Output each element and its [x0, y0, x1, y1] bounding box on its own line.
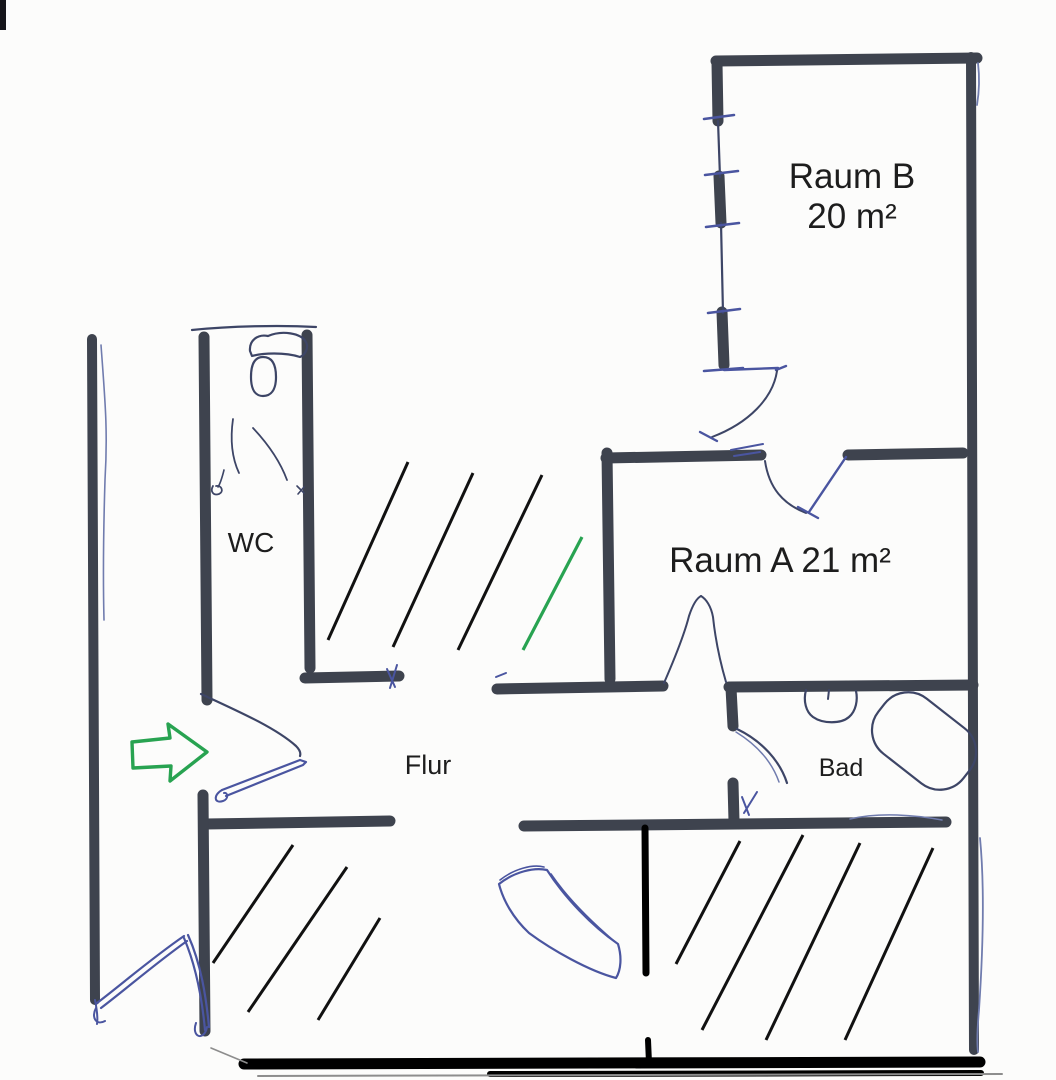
room-area-raum-b: 20 m²	[742, 197, 962, 237]
raum-a-door-swing	[765, 461, 806, 513]
wc-wall-right	[307, 335, 310, 668]
wc-hinge-circle	[212, 486, 222, 495]
hatch-line-bottom-left	[318, 918, 380, 1020]
wc-sketch-curve	[218, 470, 224, 487]
raum-b-wall-left-b	[719, 176, 721, 223]
raum-a-door-tick	[798, 507, 818, 518]
hatch-line-bottom-right	[702, 835, 803, 1030]
scan-edge-mark	[0, 0, 6, 30]
raum-b-wall-left-c	[722, 312, 724, 365]
wc-wall-corner	[305, 676, 399, 678]
wc-sketch-curve	[232, 419, 239, 473]
hatch-line-bottom-left	[213, 845, 293, 963]
entry-door-scribble	[94, 1008, 207, 1036]
flur-door-swing	[701, 596, 726, 682]
wc-wall-left-upper	[204, 337, 207, 700]
green-hatch-line	[523, 537, 582, 650]
wc-door-leaf	[222, 760, 306, 796]
raum-b-wall-top	[716, 58, 977, 61]
raum-b-wall-left-a	[717, 63, 718, 121]
flur-wall-bottom-left	[206, 821, 390, 824]
black-wall-vertical	[645, 828, 646, 973]
flur-wall-tick	[496, 673, 506, 677]
outer-wall-left	[92, 339, 95, 1000]
wc-wall-top-sketch	[192, 326, 316, 330]
hatch-line-middle	[458, 475, 542, 650]
floor-plan: Raum B 20 m² Raum A 21 m² WC Flur Bad	[0, 0, 1056, 1080]
flur-wall-top	[497, 686, 663, 689]
bad-wall-top	[729, 685, 973, 687]
raum-a-wall-left	[607, 453, 610, 679]
room-label-flur: Flur	[398, 750, 458, 781]
room-label-raum-b: Raum B 20 m²	[742, 157, 962, 237]
room-label-raum-a: Raum A 21 m²	[655, 541, 905, 581]
toilet-tank-sketch	[250, 333, 307, 357]
entrance-arrow-icon	[132, 724, 207, 781]
bad-wall-left-a	[731, 688, 733, 726]
right-wall-pen-line-top	[977, 63, 979, 105]
hatch-line-middle	[393, 473, 473, 647]
room-label-bad: Bad	[816, 754, 866, 783]
curved-band-inner-line	[551, 874, 614, 941]
toilet-bowl-sketch	[251, 357, 276, 396]
flur-wall-bottom-right	[524, 822, 946, 826]
room-name-raum-b: Raum B	[742, 157, 962, 197]
hatch-line-middle	[328, 462, 408, 640]
sink-faucet-mark	[828, 690, 829, 699]
raum-a-door-leaf	[809, 457, 846, 512]
room-label-wc: WC	[221, 527, 281, 559]
raum-a-wall-top-right	[848, 453, 963, 455]
bad-door-scribble	[742, 792, 757, 815]
flur-door-swing	[664, 596, 701, 683]
entry-door-swing-left	[97, 936, 187, 1008]
wc-door-swing	[201, 694, 300, 756]
outer-wall-right	[971, 57, 974, 1050]
bad-wall-left-b	[733, 783, 734, 821]
hatch-line-bottom-right	[845, 848, 933, 1040]
hatch-line-bottom-right	[766, 843, 860, 1040]
raum-b-door-swing	[712, 371, 777, 437]
wc-sketch-curve	[253, 428, 287, 480]
hatch-line-bottom-right	[676, 841, 740, 964]
left-wall-pen-line	[101, 345, 106, 620]
outer-wall-bottom	[244, 1062, 980, 1064]
bottom-diag-mark	[211, 1048, 247, 1063]
sink-sketch	[805, 690, 857, 722]
